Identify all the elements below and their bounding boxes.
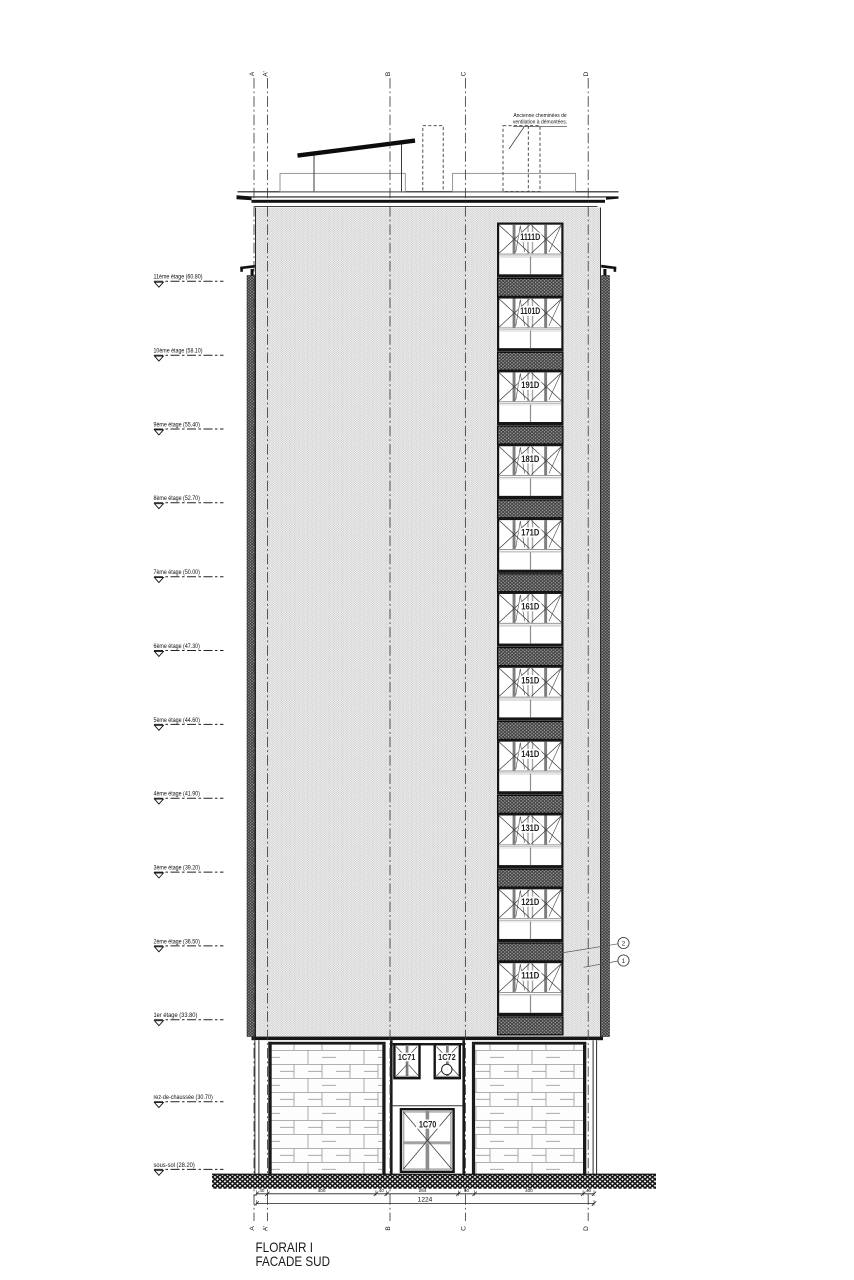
svg-text:1C71: 1C71 (398, 1052, 416, 1062)
svg-text:ventilation à démontées.: ventilation à démontées. (513, 119, 567, 125)
svg-text:151D: 151D (521, 675, 539, 685)
svg-text:3ème étage (39.20): 3ème étage (39.20) (154, 865, 200, 872)
svg-text:D: D (583, 1226, 590, 1231)
svg-text:C: C (460, 71, 467, 76)
svg-text:161D: 161D (521, 601, 539, 611)
svg-text:C: C (460, 1226, 467, 1231)
svg-text:191D: 191D (521, 380, 539, 390)
svg-text:10ème étage (58.10): 10ème étage (58.10) (154, 348, 203, 355)
svg-text:400: 400 (318, 1188, 326, 1193)
svg-text:9ème étage (55.40): 9ème étage (55.40) (154, 421, 200, 428)
svg-text:2ème étage (36.50): 2ème étage (36.50) (154, 938, 200, 945)
svg-text:7ème étage (50.00): 7ème étage (50.00) (154, 569, 200, 576)
svg-text:264: 264 (419, 1188, 427, 1193)
svg-text:1111D: 1111D (520, 232, 540, 242)
svg-text:121D: 121D (521, 897, 539, 907)
svg-text:1C72: 1C72 (438, 1052, 456, 1062)
svg-text:111D: 111D (521, 971, 540, 981)
svg-text:rez-de-chaussée (30.70): rez-de-chaussée (30.70) (154, 1094, 213, 1101)
svg-text:D: D (583, 71, 590, 76)
svg-text:5ème étage (44.60): 5ème étage (44.60) (154, 717, 200, 724)
svg-text:1224: 1224 (418, 1197, 433, 1204)
svg-text:Ancienne cheminées de: Ancienne cheminées de (513, 113, 567, 119)
svg-text:11ème étage (60.80): 11ème étage (60.80) (154, 274, 203, 281)
svg-text:1er étage (33.80): 1er étage (33.80) (154, 1012, 198, 1019)
svg-text:B: B (385, 1226, 392, 1230)
svg-text:60: 60 (464, 1188, 470, 1193)
svg-text:40: 40 (586, 1188, 592, 1193)
svg-text:A': A' (263, 71, 270, 77)
svg-text:sous-sol (28.20): sous-sol (28.20) (154, 1162, 195, 1169)
svg-text:8ème étage (52.70): 8ème étage (52.70) (154, 495, 200, 502)
svg-text:131D: 131D (521, 823, 539, 833)
svg-text:1: 1 (622, 958, 626, 965)
svg-text:171D: 171D (521, 528, 539, 538)
svg-text:40: 40 (379, 1188, 385, 1193)
svg-text:1C70: 1C70 (419, 1119, 437, 1129)
svg-text:181D: 181D (521, 454, 539, 464)
svg-text:4ème étage (41.90): 4ème étage (41.90) (154, 791, 200, 798)
svg-text:2: 2 (622, 940, 626, 947)
svg-text:40: 40 (259, 1188, 265, 1193)
svg-text:FACADE SUD: FACADE SUD (256, 1253, 331, 1269)
svg-text:400: 400 (525, 1188, 533, 1193)
svg-text:A: A (249, 1226, 256, 1231)
svg-text:A: A (249, 71, 256, 76)
svg-text:141D: 141D (521, 749, 539, 759)
svg-text:A': A' (263, 1226, 270, 1232)
svg-text:B: B (385, 72, 392, 76)
svg-text:6ème étage (47.30): 6ème étage (47.30) (154, 643, 200, 650)
svg-text:1101D: 1101D (520, 306, 540, 316)
